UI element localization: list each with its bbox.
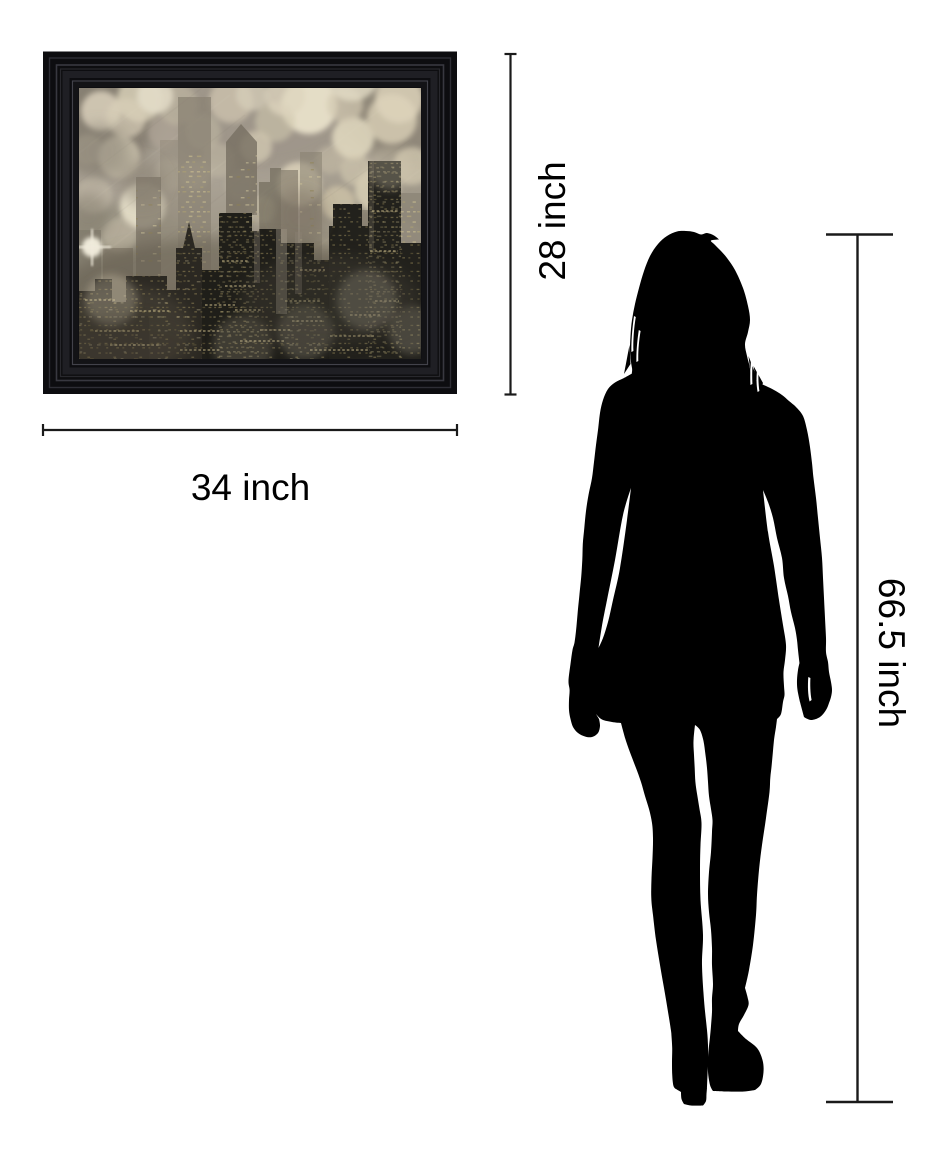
svg-text:28 inch: 28 inch: [532, 161, 573, 280]
svg-text:34 inch: 34 inch: [191, 467, 310, 508]
svg-text:66.5 inch: 66.5 inch: [871, 578, 912, 728]
